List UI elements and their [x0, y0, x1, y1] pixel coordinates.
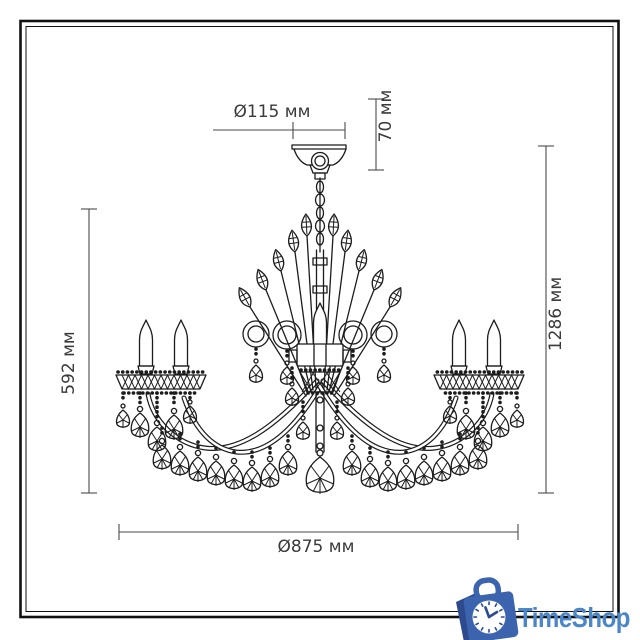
canopy-height-label: 70 мм — [376, 90, 396, 143]
central-column — [316, 392, 324, 452]
width-label: Ø875 мм — [278, 537, 355, 557]
chandelier-line-drawing — [116, 145, 524, 494]
dimension-total-height: 1286 мм — [538, 146, 566, 493]
central-hub — [289, 344, 351, 366]
right-arm-assembly — [319, 320, 524, 492]
leaf-spray-left — [235, 214, 316, 406]
dimension-width: Ø875 мм — [119, 524, 518, 557]
ceiling-canopy — [292, 145, 346, 179]
clock-icon — [473, 601, 506, 634]
leaf-spray-right — [324, 214, 405, 406]
left-arm-assembly — [116, 320, 321, 492]
central-drop-crystal — [306, 450, 334, 494]
total-height-label: 1286 мм — [546, 277, 566, 351]
dimension-body-height: 592 мм — [59, 209, 97, 493]
chandelier-technical-drawing: Ø115 мм 70 мм 592 мм 1286 мм Ø875 мм — [0, 0, 640, 640]
dimension-canopy-diameter: Ø115 мм — [213, 102, 345, 139]
body-height-label: 592 мм — [59, 331, 79, 395]
canopy-diameter-label: Ø115 мм — [234, 102, 311, 122]
product-drawing-page: Ø115 мм 70 мм 592 мм 1286 мм Ø875 мм — [0, 0, 640, 640]
brand-name: TimeShop — [518, 602, 630, 633]
dimension-canopy-height: 70 мм — [368, 90, 396, 170]
timeshop-logo: TimeShop — [456, 579, 630, 640]
